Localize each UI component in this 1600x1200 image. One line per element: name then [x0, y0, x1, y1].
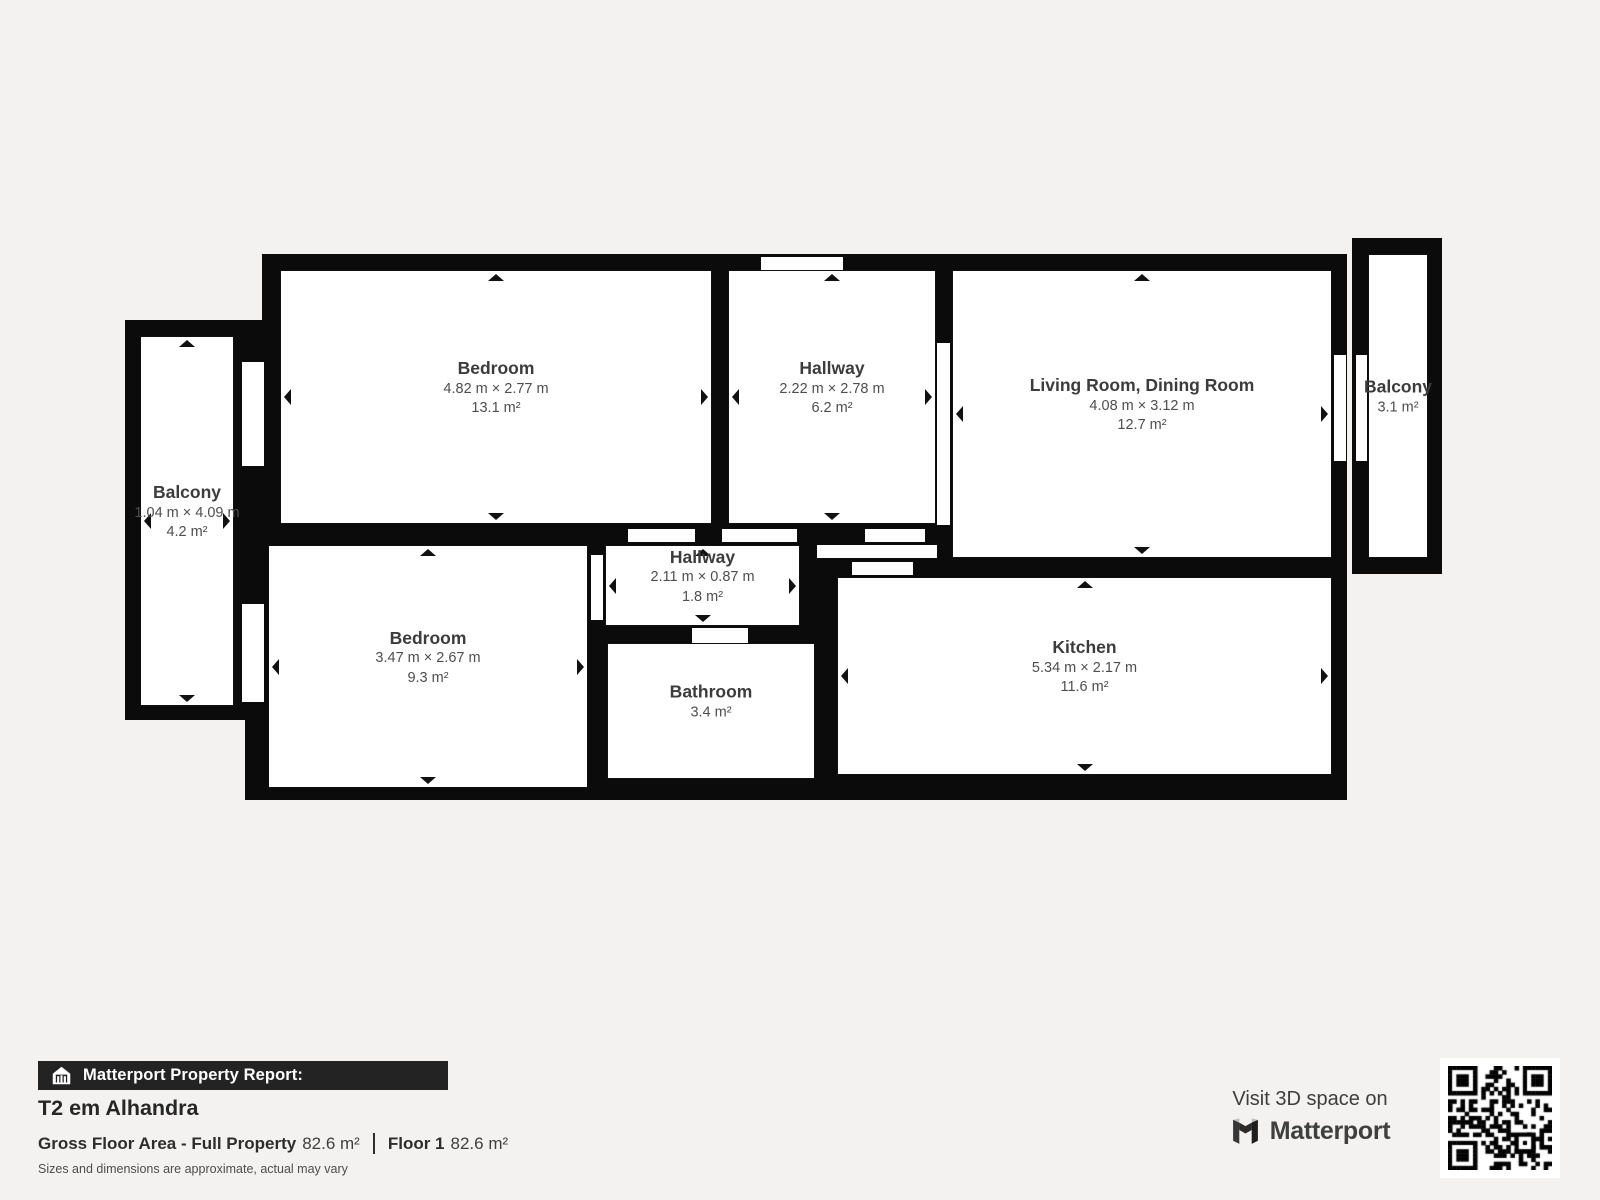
room-dimensions: 5.34 m × 2.17 m	[1032, 659, 1137, 678]
room-area: 4.2 m²	[134, 523, 239, 542]
dimension-arrow-right	[789, 578, 796, 594]
room-label-kitchen: Kitchen5.34 m × 2.17 m11.6 m²	[1032, 637, 1137, 697]
dimension-arrow-right	[577, 659, 584, 675]
room-area: 6.2 m²	[779, 399, 884, 418]
house-report-icon	[51, 1065, 72, 1086]
room-name: Bathroom	[670, 682, 753, 704]
opening-door-living-room-balcony	[1334, 355, 1346, 461]
room-label-living-dining-room: Living Room, Dining Room4.08 m × 3.12 m1…	[1030, 375, 1255, 435]
dimension-arrow-left	[732, 389, 739, 405]
room-dimensions: 4.08 m × 3.12 m	[1030, 397, 1255, 416]
dimension-arrow-right	[701, 389, 708, 405]
dimension-arrow-right	[1321, 406, 1328, 422]
dimension-arrow-up	[1077, 581, 1093, 588]
dimension-arrow-left	[272, 659, 279, 675]
dimension-arrow-up	[824, 274, 840, 281]
room-area: 9.3 m²	[375, 668, 480, 687]
dimension-arrow-down	[179, 695, 195, 702]
dimension-arrow-left	[841, 668, 848, 684]
room-name: Balcony	[134, 482, 239, 504]
room-label-hallway-1: Hallway2.22 m × 2.78 m6.2 m²	[779, 358, 884, 418]
dimension-arrow-right	[1321, 668, 1328, 684]
room-label-hallway-2: Hallway2.11 m × 0.87 m1.8 m²	[650, 546, 754, 606]
divider	[373, 1133, 375, 1154]
room-label-balcony-left: Balcony1.04 m × 4.09 m4.2 m²	[134, 482, 239, 542]
room-dimensions: 3.47 m × 2.67 m	[375, 649, 480, 668]
room-label-bedroom-1: Bedroom4.82 m × 2.77 m13.1 m²	[443, 358, 548, 418]
report-bar-label: Matterport Property Report:	[83, 1066, 303, 1085]
room-area: 3.1 m²	[1364, 398, 1432, 417]
room-label-balcony-right: Balcony3.1 m²	[1364, 377, 1432, 418]
visit-3d-cta: Visit 3D space on Matterport	[1188, 1088, 1432, 1147]
qr-code	[1440, 1058, 1560, 1178]
gfa-label: Gross Floor Area - Full Property	[38, 1134, 296, 1154]
dimension-arrow-right	[925, 389, 932, 405]
opening-door-kitchen-c	[852, 562, 913, 575]
room-dimensions: 2.11 m × 0.87 m	[650, 568, 754, 587]
matterport-logo-icon	[1230, 1116, 1261, 1147]
opening-door-bedroom-1	[628, 529, 695, 542]
room-name: Bedroom	[443, 358, 548, 380]
dimension-arrow-up	[179, 340, 195, 347]
dimension-arrow-left	[609, 578, 616, 594]
dimension-arrow-down	[488, 513, 504, 520]
room-label-bedroom-2: Bedroom3.47 m × 2.67 m9.3 m²	[375, 627, 480, 687]
opening-door-kitchen-a	[865, 529, 925, 542]
property-title: T2 em Alhandra	[38, 1096, 199, 1121]
matterport-brand: Matterport	[1188, 1116, 1432, 1147]
matterport-wordmark: Matterport	[1270, 1117, 1391, 1146]
room-name: Hallway	[650, 546, 754, 568]
room-dimensions: 4.82 m × 2.77 m	[443, 380, 548, 399]
floor-label: Floor 1	[388, 1134, 445, 1154]
dimension-arrow-up	[1134, 274, 1150, 281]
room-name: Bedroom	[375, 627, 480, 649]
room-area: 11.6 m²	[1032, 678, 1137, 697]
room-area: 13.1 m²	[443, 399, 548, 418]
dimension-arrow-down	[1077, 764, 1093, 771]
room-name: Balcony	[1364, 377, 1432, 399]
opening-window-balcony-left-upper	[242, 362, 264, 466]
dimension-arrow-up	[488, 274, 504, 281]
room-area: 3.4 m²	[670, 703, 753, 722]
floor-value: 82.6 m²	[451, 1134, 509, 1154]
opening-door-bathroom	[692, 628, 748, 643]
dimension-arrow-down	[695, 615, 711, 622]
floor-area-line: Gross Floor Area - Full Property 82.6 m²…	[38, 1133, 508, 1154]
dimension-arrow-down	[824, 513, 840, 520]
room-dimensions: 2.22 m × 2.78 m	[779, 380, 884, 399]
opening-door-kitchen-b	[817, 545, 937, 558]
opening-window-balcony-left-lower	[242, 604, 264, 702]
qr-code-canvas	[1448, 1066, 1552, 1170]
gfa-value: 82.6 m²	[302, 1134, 360, 1154]
room-name: Hallway	[779, 358, 884, 380]
floor-plan-page: Bedroom4.82 m × 2.77 m13.1 m²Hallway2.22…	[0, 0, 1600, 1200]
room-name: Living Room, Dining Room	[1030, 375, 1255, 397]
opening-door-hallway-1	[722, 529, 797, 542]
report-bar: Matterport Property Report:	[38, 1061, 448, 1090]
opening-window-hallway-top	[761, 257, 843, 270]
room-area: 12.7 m²	[1030, 416, 1255, 435]
room-label-bathroom: Bathroom3.4 m²	[670, 682, 753, 723]
dimension-arrow-left	[956, 406, 963, 422]
opening-door-bedroom-2	[591, 555, 603, 620]
dimension-arrow-up	[420, 549, 436, 556]
dimension-arrow-left	[284, 389, 291, 405]
dimension-arrow-down	[420, 777, 436, 784]
room-dimensions: 1.04 m × 4.09 m	[134, 504, 239, 523]
visit-text: Visit 3D space on	[1188, 1088, 1432, 1111]
room-name: Kitchen	[1032, 637, 1137, 659]
disclaimer-text: Sizes and dimensions are approximate, ac…	[38, 1162, 348, 1176]
dimension-arrow-down	[1134, 547, 1150, 554]
room-area: 1.8 m²	[650, 587, 754, 606]
opening-door-hallway-living-room	[937, 343, 950, 525]
